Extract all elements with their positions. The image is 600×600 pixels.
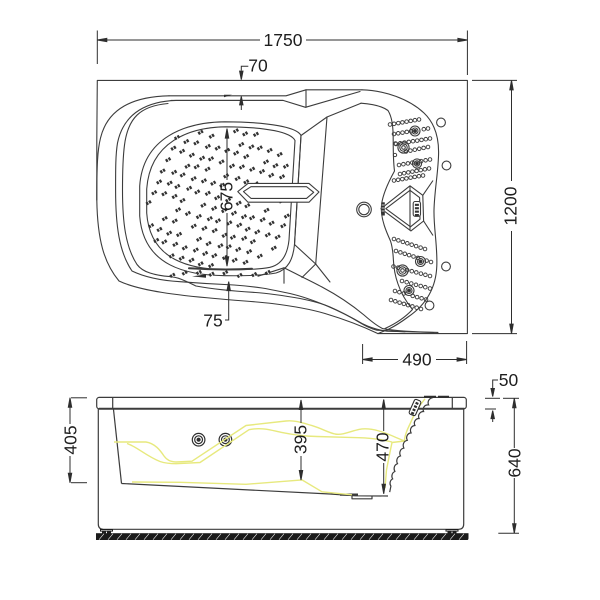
svg-text:675: 675: [217, 182, 237, 211]
svg-text:490: 490: [402, 350, 431, 370]
svg-text:470: 470: [372, 432, 392, 461]
svg-text:75: 75: [203, 311, 222, 331]
svg-text:1750: 1750: [264, 30, 303, 50]
svg-text:70: 70: [248, 56, 268, 76]
svg-text:1200: 1200: [501, 186, 521, 225]
svg-text:395: 395: [291, 425, 311, 454]
svg-text:50: 50: [499, 370, 519, 390]
svg-text:640: 640: [504, 448, 524, 477]
svg-text:405: 405: [60, 425, 80, 454]
